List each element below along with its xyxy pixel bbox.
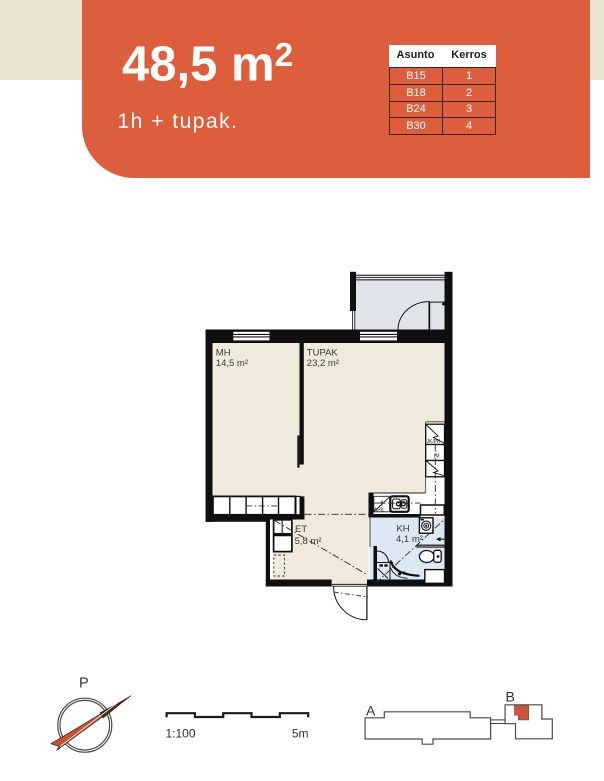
svg-text:B: B	[506, 689, 515, 705]
svg-text:APK: APK	[374, 508, 385, 514]
svg-text:ET: ET	[295, 524, 307, 535]
svg-text:KH: KH	[396, 523, 409, 534]
svg-text:23,2 m²: 23,2 m²	[307, 358, 339, 369]
svg-text:JK/PK: JK/PK	[427, 439, 442, 445]
svg-text:IM: IM	[434, 454, 440, 460]
svg-text:4,1 m²: 4,1 m²	[396, 534, 423, 545]
svg-text:14,5 m²: 14,5 m²	[216, 358, 248, 369]
svg-text:1:100: 1:100	[166, 727, 196, 741]
svg-text:A: A	[366, 703, 376, 719]
svg-text:TUPAK: TUPAK	[307, 347, 339, 358]
svg-text:MH: MH	[216, 347, 231, 358]
svg-text:5m: 5m	[292, 727, 309, 741]
svg-text:P: P	[79, 676, 89, 692]
svg-text:5,8 m²: 5,8 m²	[295, 536, 322, 547]
